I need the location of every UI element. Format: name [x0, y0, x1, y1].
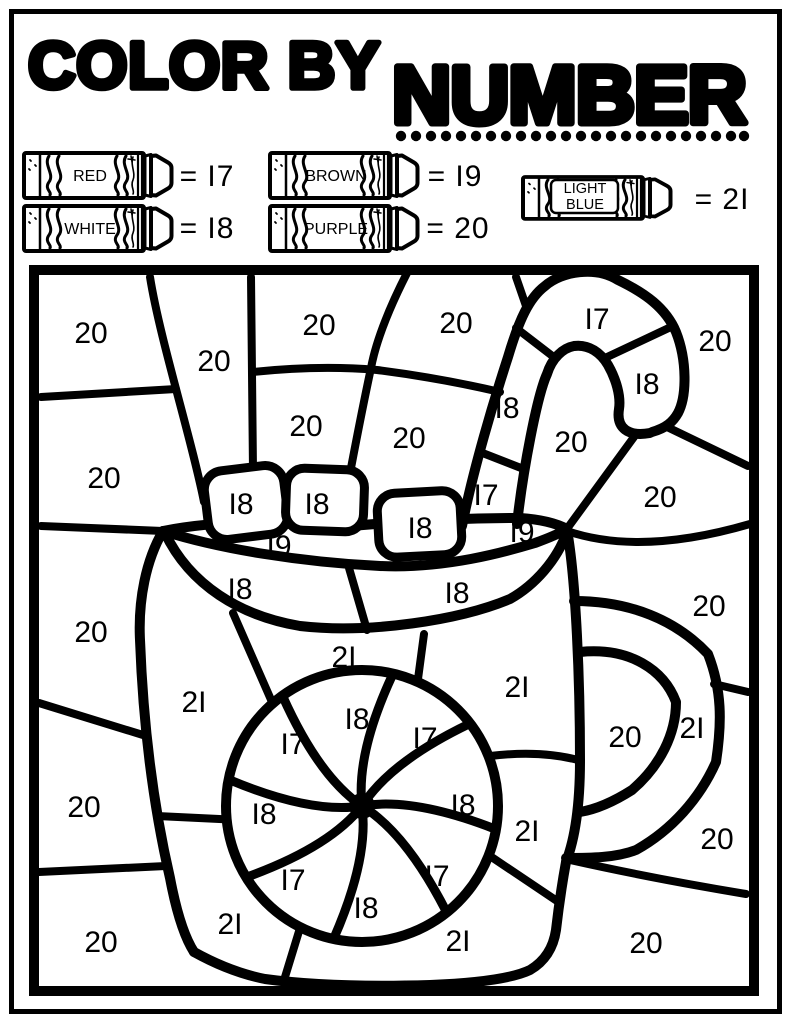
svg-text:20: 20: [74, 616, 107, 649]
svg-text:I7: I7: [473, 479, 498, 512]
svg-text:I8: I8: [494, 392, 519, 425]
svg-text:2I: 2I: [679, 712, 704, 745]
svg-text:20: 20: [84, 926, 117, 959]
svg-text:RED: RED: [73, 168, 107, 185]
svg-text:I9: I9: [266, 530, 291, 563]
svg-text:NUMBER: NUMBER: [392, 50, 746, 141]
svg-text:20: 20: [74, 317, 107, 350]
svg-text:20: 20: [439, 307, 472, 340]
svg-text:20: 20: [87, 462, 120, 495]
svg-text:20: 20: [302, 309, 335, 342]
svg-text:20: 20: [289, 410, 322, 443]
svg-text:2I: 2I: [445, 925, 470, 958]
svg-text:I8: I8: [228, 488, 253, 521]
svg-text:BROWN: BROWN: [305, 168, 366, 185]
svg-text:I7: I7: [424, 860, 449, 893]
svg-text:20: 20: [608, 721, 641, 754]
svg-text:= I8: = I8: [180, 212, 235, 245]
svg-text:I9: I9: [509, 516, 534, 549]
svg-text:2I: 2I: [181, 686, 206, 719]
svg-text:I7: I7: [584, 303, 609, 336]
svg-text:I8: I8: [634, 368, 659, 401]
svg-text:20: 20: [698, 325, 731, 358]
svg-text:PURPLE: PURPLE: [304, 221, 368, 238]
svg-text:COLOR BY: COLOR BY: [28, 28, 380, 102]
svg-text:2I: 2I: [504, 671, 529, 704]
svg-text:I8: I8: [344, 703, 369, 736]
svg-text:I8: I8: [444, 577, 469, 610]
svg-text:I8: I8: [227, 573, 252, 606]
svg-text:I7: I7: [280, 864, 305, 897]
svg-text:I8: I8: [251, 798, 276, 831]
svg-text:20: 20: [67, 791, 100, 824]
svg-text:2I: 2I: [217, 908, 242, 941]
svg-text:LIGHT: LIGHT: [564, 181, 607, 197]
svg-text:20: 20: [554, 426, 587, 459]
svg-text:2I: 2I: [514, 815, 539, 848]
svg-text:I8: I8: [353, 892, 378, 925]
svg-text:I7: I7: [412, 722, 437, 755]
svg-text:= I7: = I7: [180, 160, 235, 193]
svg-text:20: 20: [643, 481, 676, 514]
svg-text:2I: 2I: [331, 641, 356, 674]
svg-text:= 20: = 20: [426, 212, 489, 245]
svg-text:I8: I8: [304, 488, 329, 521]
svg-text:WHITE: WHITE: [64, 221, 116, 238]
svg-text:20: 20: [629, 927, 662, 960]
svg-text:I8: I8: [450, 789, 475, 822]
svg-text:BLUE: BLUE: [566, 197, 604, 213]
svg-text:20: 20: [197, 345, 230, 378]
svg-text:20: 20: [700, 823, 733, 856]
svg-text:= 2I: = 2I: [695, 183, 750, 216]
svg-text:20: 20: [692, 590, 725, 623]
svg-text:I7: I7: [280, 728, 305, 761]
svg-text:I8: I8: [407, 512, 432, 545]
svg-text:20: 20: [392, 422, 425, 455]
svg-text:= I9: = I9: [428, 160, 483, 193]
